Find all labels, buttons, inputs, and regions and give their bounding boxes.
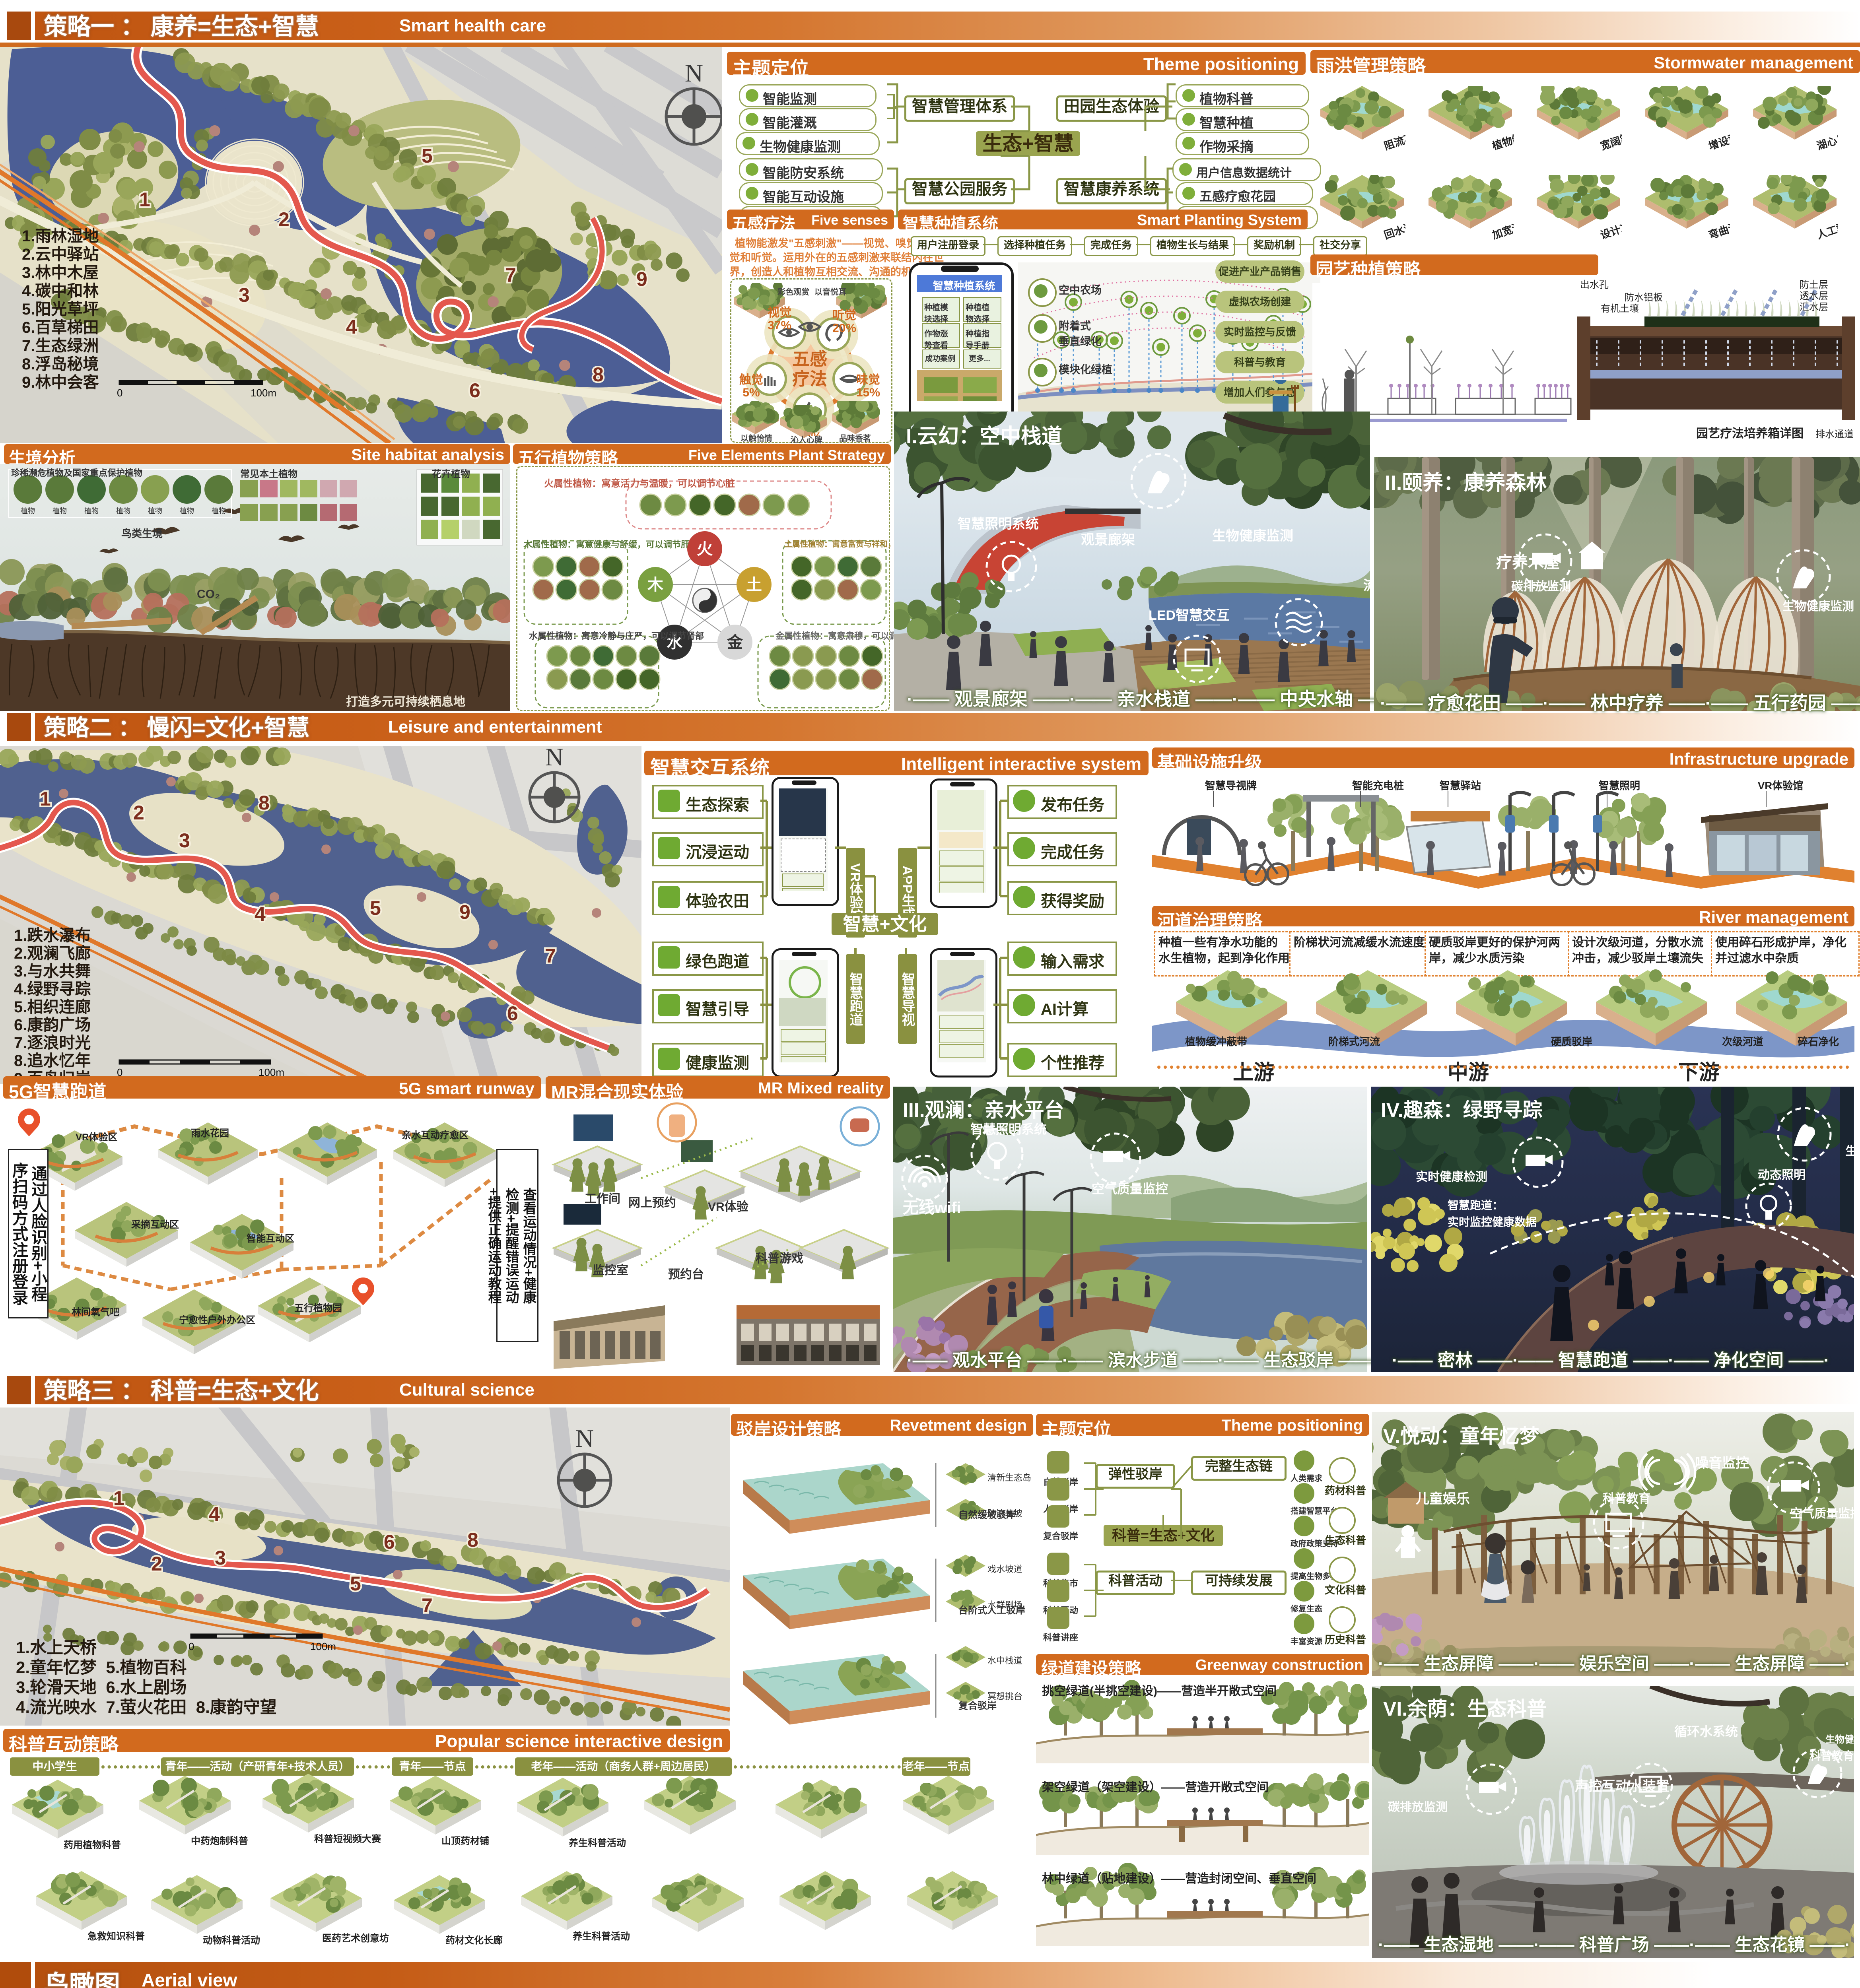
svg-text:100m: 100m bbox=[251, 387, 276, 399]
svg-text:味觉: 味觉 bbox=[856, 373, 880, 386]
svg-text:6: 6 bbox=[469, 379, 480, 402]
svg-text:2: 2 bbox=[278, 208, 290, 231]
svg-text:水中栈道: 水中栈道 bbox=[987, 1656, 1022, 1666]
svg-text:3: 3 bbox=[179, 829, 190, 852]
svg-text:回水湾: 回水湾 bbox=[1382, 220, 1405, 241]
svg-text:9: 9 bbox=[459, 901, 470, 923]
svg-text:增设蓄水池: 增设蓄水池 bbox=[1707, 125, 1730, 152]
svg-text:1: 1 bbox=[113, 1487, 124, 1509]
svg-text:清新生态岛: 清新生态岛 bbox=[987, 1473, 1031, 1483]
svg-text:0: 0 bbox=[117, 387, 122, 399]
svg-text:视觉: 视觉 bbox=[768, 306, 791, 319]
svg-text:火: 火 bbox=[697, 540, 713, 558]
svg-text:15%: 15% bbox=[856, 386, 880, 399]
svg-text:排水通道: 排水通道 bbox=[1815, 429, 1854, 440]
svg-text:湖心岛: 湖心岛 bbox=[1815, 131, 1838, 152]
svg-text:2: 2 bbox=[133, 802, 144, 824]
svg-text:植物: 植物 bbox=[116, 507, 130, 515]
svg-text:1: 1 bbox=[139, 188, 150, 211]
svg-text:3: 3 bbox=[215, 1547, 226, 1569]
svg-text:听觉: 听觉 bbox=[832, 309, 856, 322]
svg-text:园艺疗法培养箱详图: 园艺疗法培养箱详图 bbox=[1696, 427, 1804, 440]
svg-text:植物: 植物 bbox=[148, 507, 162, 515]
svg-text:5%: 5% bbox=[742, 386, 760, 399]
svg-text:土: 土 bbox=[746, 576, 762, 594]
svg-text:植物: 植物 bbox=[52, 507, 67, 515]
svg-text:6: 6 bbox=[384, 1531, 395, 1553]
svg-text:5: 5 bbox=[350, 1573, 361, 1595]
svg-text:6: 6 bbox=[507, 1002, 518, 1025]
svg-text:1: 1 bbox=[40, 788, 51, 810]
svg-text:植物: 植物 bbox=[21, 507, 35, 515]
svg-text:植物: 植物 bbox=[180, 507, 194, 515]
svg-text:透水层: 透水层 bbox=[1800, 291, 1828, 301]
svg-text:疗法: 疗法 bbox=[792, 369, 827, 389]
svg-text:2: 2 bbox=[151, 1553, 162, 1575]
svg-text:5: 5 bbox=[422, 145, 433, 167]
svg-text:木: 木 bbox=[647, 576, 663, 594]
svg-text:有机土壤: 有机土壤 bbox=[1601, 303, 1639, 314]
svg-text:7: 7 bbox=[422, 1594, 433, 1617]
svg-text:5: 5 bbox=[370, 897, 381, 919]
svg-text:弯曲河道: 弯曲河道 bbox=[1707, 217, 1730, 241]
svg-text:出水孔: 出水孔 bbox=[1580, 280, 1609, 290]
svg-text:37%: 37% bbox=[768, 319, 791, 332]
svg-text:0: 0 bbox=[189, 1640, 194, 1652]
svg-text:3: 3 bbox=[239, 284, 250, 306]
svg-text:7: 7 bbox=[505, 264, 516, 286]
svg-text:7: 7 bbox=[545, 945, 556, 967]
svg-text:加宽河道: 加宽河道 bbox=[1491, 217, 1514, 241]
svg-text:4: 4 bbox=[346, 316, 357, 338]
svg-text:9: 9 bbox=[636, 268, 647, 290]
svg-text:汇水层: 汇水层 bbox=[1800, 302, 1828, 313]
svg-text:阻流石块: 阻流石块 bbox=[1382, 128, 1405, 152]
svg-text:五感: 五感 bbox=[792, 349, 827, 369]
svg-text:戏水坡道: 戏水坡道 bbox=[987, 1564, 1022, 1574]
svg-text:8: 8 bbox=[593, 363, 604, 386]
svg-text:4: 4 bbox=[255, 903, 266, 925]
svg-text:8: 8 bbox=[258, 792, 270, 814]
svg-text:4: 4 bbox=[209, 1503, 220, 1525]
svg-text:金: 金 bbox=[727, 633, 743, 651]
svg-text:植物: 植物 bbox=[84, 507, 99, 515]
svg-text:100m: 100m bbox=[310, 1640, 336, 1652]
svg-text:N: N bbox=[545, 746, 564, 771]
svg-text:N: N bbox=[685, 59, 703, 87]
svg-text:8: 8 bbox=[467, 1529, 478, 1551]
svg-text:防水铝板: 防水铝板 bbox=[1625, 292, 1663, 303]
svg-text:植物: 植物 bbox=[212, 507, 226, 515]
svg-text:触觉: 触觉 bbox=[739, 373, 763, 386]
svg-text:N: N bbox=[575, 1424, 594, 1452]
svg-text:防土层: 防土层 bbox=[1800, 280, 1828, 290]
svg-text:20%: 20% bbox=[832, 322, 856, 335]
